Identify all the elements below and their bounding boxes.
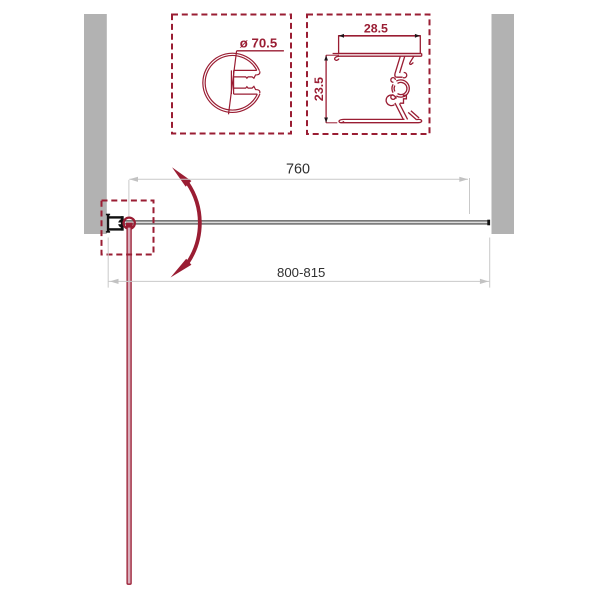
svg-text:23.5: 23.5 [312,77,326,101]
svg-text:28.5: 28.5 [364,21,388,35]
svg-text:ø 70.5: ø 70.5 [240,36,277,51]
svg-text:800-815: 800-815 [277,265,325,280]
svg-text:760: 760 [286,162,310,178]
